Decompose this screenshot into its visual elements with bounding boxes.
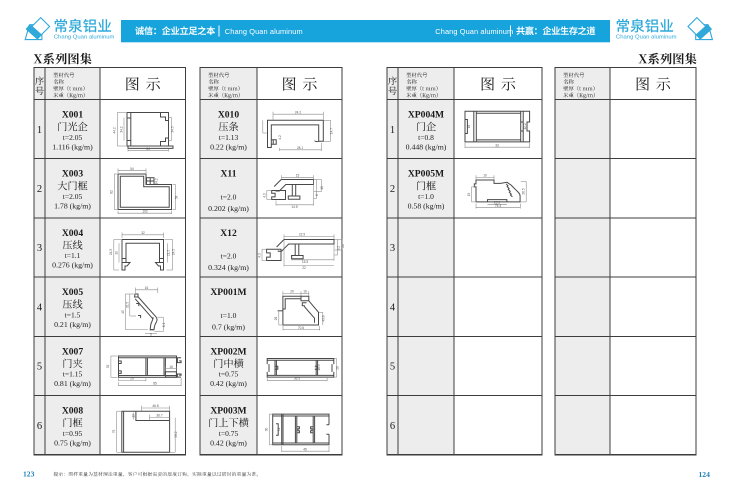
svg-text:t=1.13: t=1.13 [219, 133, 239, 142]
svg-text:XP003M: XP003M [210, 406, 246, 417]
svg-text:Chang Quan aluminum: Chang Quan aluminum [435, 27, 513, 36]
svg-text:33: 33 [495, 143, 499, 147]
svg-text:X007: X007 [62, 346, 84, 357]
svg-text:1: 1 [37, 125, 42, 136]
svg-text:X005: X005 [62, 287, 84, 298]
svg-text:24.5: 24.5 [109, 249, 113, 255]
svg-text:0.58 (kg/m): 0.58 (kg/m) [408, 202, 445, 211]
svg-text:Chang Quan aluminum: Chang Quan aluminum [616, 34, 677, 40]
svg-text:16: 16 [303, 290, 307, 294]
svg-text:9.2: 9.2 [336, 246, 340, 251]
svg-text:36.5: 36.5 [294, 376, 300, 380]
svg-text:16: 16 [169, 365, 173, 369]
svg-text:20: 20 [341, 244, 345, 248]
svg-text:0.42 (kg/m): 0.42 (kg/m) [210, 438, 247, 447]
svg-text:4.3: 4.3 [262, 193, 266, 198]
svg-text:X003: X003 [62, 169, 84, 180]
svg-text:X010: X010 [218, 110, 240, 121]
svg-text:24.2: 24.2 [295, 110, 301, 114]
svg-text:45: 45 [121, 310, 125, 314]
svg-text:123: 123 [23, 469, 35, 478]
svg-text:0.324 (kg/m): 0.324 (kg/m) [208, 263, 249, 272]
svg-text:36.7: 36.7 [156, 414, 162, 418]
svg-text:34.5: 34.5 [170, 126, 174, 132]
svg-text:0.22 (kg/m): 0.22 (kg/m) [210, 142, 247, 151]
svg-text:X12: X12 [220, 228, 237, 239]
svg-text:75.4: 75.4 [495, 204, 501, 208]
svg-text:10: 10 [320, 186, 324, 190]
svg-text:0.42 (kg/m): 0.42 (kg/m) [210, 379, 247, 388]
svg-text:12.2: 12.2 [523, 123, 527, 129]
svg-text:10: 10 [483, 174, 487, 178]
svg-text:t=0.95: t=0.95 [63, 429, 83, 438]
svg-text:0.276 (kg/m): 0.276 (kg/m) [52, 261, 93, 270]
svg-text:0.202 (kg/m): 0.202 (kg/m) [208, 204, 249, 213]
svg-text:43.6: 43.6 [321, 315, 325, 321]
svg-text:2: 2 [390, 184, 395, 195]
svg-text:10.5: 10.5 [317, 364, 321, 370]
svg-text:t=2.0: t=2.0 [221, 252, 237, 261]
svg-text:3: 3 [37, 243, 42, 254]
svg-text:58.2: 58.2 [174, 431, 178, 437]
svg-text:0.81 (kg/m): 0.81 (kg/m) [54, 379, 91, 388]
svg-text:14.2: 14.2 [155, 178, 159, 184]
svg-text:X001: X001 [62, 110, 84, 121]
svg-text:32.5: 32.5 [125, 302, 129, 308]
svg-text:2: 2 [37, 184, 42, 195]
svg-text:XP002M: XP002M [210, 346, 246, 357]
svg-text:124: 124 [699, 470, 711, 479]
svg-text:44.2: 44.2 [113, 127, 117, 133]
svg-text:X008: X008 [62, 406, 84, 417]
svg-text:31: 31 [277, 428, 281, 432]
svg-text:32: 32 [141, 231, 145, 235]
svg-text:t=1.5: t=1.5 [65, 310, 81, 319]
svg-text:58: 58 [175, 196, 179, 200]
svg-text:15: 15 [467, 193, 471, 197]
svg-text:6: 6 [315, 194, 319, 196]
svg-text:75: 75 [112, 430, 116, 434]
svg-text:32: 32 [106, 365, 110, 369]
svg-text:16: 16 [145, 286, 149, 290]
svg-text:t=2.0: t=2.0 [221, 193, 237, 202]
svg-text:0.448 (kg/m): 0.448 (kg/m) [406, 142, 447, 151]
svg-text:1.78 (kg/m): 1.78 (kg/m) [54, 202, 91, 211]
svg-text:18: 18 [467, 125, 471, 129]
svg-text:34.2: 34.2 [119, 126, 123, 132]
svg-text:XP001M: XP001M [210, 287, 246, 298]
svg-text:t=0.75: t=0.75 [219, 370, 239, 379]
svg-text:15: 15 [296, 174, 300, 178]
svg-text:1: 1 [390, 125, 395, 136]
svg-text:Chang Quan aluminum: Chang Quan aluminum [54, 34, 115, 40]
svg-text:34: 34 [146, 147, 150, 151]
svg-text:4: 4 [390, 302, 396, 313]
svg-text:28.1: 28.1 [297, 146, 303, 150]
svg-text:54: 54 [130, 167, 134, 171]
svg-text:XP005M: XP005M [408, 169, 444, 180]
svg-text:26: 26 [274, 317, 278, 321]
svg-text:22.5: 22.5 [299, 233, 305, 237]
svg-text:XP004M: XP004M [408, 110, 444, 121]
svg-text:8.1: 8.1 [162, 323, 166, 328]
svg-text:82: 82 [110, 190, 114, 194]
svg-text:5: 5 [37, 362, 42, 373]
svg-text:X11: X11 [221, 169, 237, 180]
svg-text:t=1.0: t=1.0 [418, 192, 434, 201]
svg-text:0.75 (kg/m): 0.75 (kg/m) [54, 438, 91, 447]
svg-text:4: 4 [37, 302, 43, 313]
svg-text:14.7: 14.7 [329, 128, 333, 134]
svg-text:5: 5 [390, 362, 395, 373]
svg-text:t=1.0: t=1.0 [221, 311, 237, 320]
svg-text:3: 3 [390, 243, 395, 254]
svg-text:46.8: 46.8 [152, 404, 158, 408]
svg-text:4.3: 4.3 [258, 253, 262, 258]
svg-text:6: 6 [37, 421, 42, 432]
svg-text:4.2: 4.2 [278, 135, 282, 140]
svg-text:70.6: 70.6 [298, 326, 304, 330]
svg-text:26: 26 [130, 377, 134, 381]
svg-text:15.5: 15.5 [302, 260, 308, 264]
svg-text:6: 6 [390, 421, 395, 432]
svg-text:26: 26 [335, 366, 339, 370]
svg-text:0.21 (kg/m): 0.21 (kg/m) [54, 320, 91, 329]
svg-text:26.5: 26.5 [522, 188, 526, 194]
svg-text:13: 13 [131, 414, 135, 418]
svg-text:t=2.05: t=2.05 [63, 133, 83, 142]
svg-text:20: 20 [290, 290, 294, 294]
svg-text:19: 19 [115, 251, 119, 255]
svg-text:t=1.1: t=1.1 [65, 251, 81, 260]
svg-text:85: 85 [153, 381, 157, 385]
svg-text:24.5: 24.5 [171, 249, 175, 255]
svg-text:t=0.8: t=0.8 [418, 133, 434, 142]
svg-text:45: 45 [303, 447, 307, 451]
svg-text:t=0.75: t=0.75 [219, 429, 239, 438]
svg-text:5: 5 [150, 333, 152, 337]
svg-text:21.5: 21.5 [166, 250, 170, 256]
svg-text:14.5: 14.5 [291, 205, 297, 209]
svg-text:X004: X004 [62, 228, 84, 239]
svg-text:30: 30 [265, 428, 269, 432]
svg-text:Chang Quan aluminum: Chang Quan aluminum [225, 27, 303, 36]
svg-text:102: 102 [142, 209, 148, 213]
svg-text:t=1.15: t=1.15 [63, 370, 83, 379]
svg-text:22: 22 [302, 266, 306, 270]
svg-text:0.7 (kg/m): 0.7 (kg/m) [212, 322, 245, 331]
svg-text:1.116 (kg/m): 1.116 (kg/m) [52, 142, 93, 151]
svg-text:t=2.05: t=2.05 [63, 192, 83, 201]
